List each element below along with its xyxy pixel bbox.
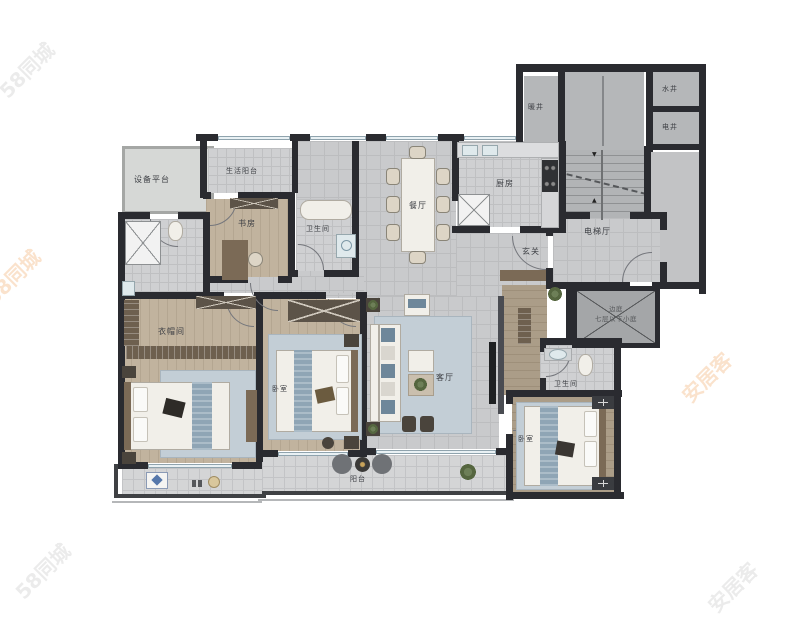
sofa-cushion [381, 382, 395, 396]
coffee-table [408, 350, 434, 372]
stool [420, 416, 434, 432]
wall [614, 344, 621, 499]
wash-basin [549, 349, 567, 360]
nightstand [344, 436, 359, 449]
wall [438, 134, 464, 141]
void-note-line2: 七层以下小庭 [572, 313, 660, 323]
stair-up-arrow-icon: ▲ [592, 198, 597, 204]
window [386, 136, 438, 140]
pillow [336, 387, 349, 415]
wardrobe [288, 300, 360, 322]
stove [542, 160, 558, 192]
nightstand [122, 366, 136, 378]
slippers [192, 480, 196, 487]
wall [366, 448, 376, 455]
room-label-bedroom-right: 卧室 [518, 436, 534, 443]
wall [506, 434, 513, 500]
wall [566, 284, 573, 344]
wash-basin [122, 281, 135, 296]
basket [208, 476, 220, 488]
fridge [458, 194, 490, 226]
wardrobe [126, 346, 256, 359]
stool [402, 416, 416, 432]
armchair-cushion [408, 299, 426, 308]
room-label-heating-shaft: 暖井 [528, 104, 544, 111]
slippers [198, 480, 202, 487]
shower [125, 221, 161, 265]
dining-chair [409, 251, 426, 264]
wall [203, 192, 211, 199]
window [148, 464, 232, 468]
room-label-balcony: 阳台 [350, 476, 366, 483]
window [464, 136, 516, 140]
sofa-cushion [381, 346, 395, 360]
wall [292, 141, 298, 193]
wall [352, 141, 359, 193]
study-bookshelf [230, 198, 278, 209]
sofa-back [370, 324, 379, 422]
balcony-rail [114, 464, 118, 498]
kitchen-sink [462, 145, 478, 156]
sofa-cushion [381, 400, 395, 414]
dining-chair [409, 146, 426, 159]
dining-chair [386, 196, 400, 213]
wall [559, 141, 566, 233]
room-label-kitchen: 厨房 [496, 180, 514, 188]
wall [558, 72, 565, 152]
balcony-chair [332, 454, 352, 474]
room-label-equipment-platform: 设备平台 [134, 176, 170, 184]
roof-line [258, 499, 514, 501]
stair-landing-line [602, 76, 604, 146]
kitchen-sink [482, 145, 498, 156]
wall [506, 492, 624, 499]
dresser [246, 390, 257, 442]
shaft-heating [524, 76, 558, 146]
wall [516, 64, 706, 72]
room-label-bath-second: 卫生间 [554, 381, 578, 388]
window [376, 450, 496, 454]
room-label-living: 客厅 [436, 374, 454, 382]
wall [256, 450, 278, 457]
window [218, 136, 290, 140]
watermark: 58同城 [0, 242, 46, 310]
wall [650, 106, 700, 112]
study-chair [248, 252, 263, 267]
wall [196, 134, 218, 141]
void-note-line1: 边庭 [572, 303, 660, 313]
wall [256, 292, 263, 462]
room-label-cloakroom: 衣帽间 [158, 328, 185, 336]
wall [232, 462, 262, 469]
window [310, 136, 366, 140]
wall [506, 396, 513, 404]
wall [650, 144, 700, 150]
wall [540, 338, 622, 345]
wall [699, 64, 706, 294]
foyer-console [500, 270, 546, 281]
bedside-mat [592, 477, 614, 490]
balcony-rail [114, 494, 266, 498]
wall [324, 270, 359, 277]
room-label-electric-shaft: 电井 [662, 124, 678, 131]
bed-throw [555, 441, 575, 458]
balcony-table [355, 457, 370, 472]
wall [292, 270, 298, 277]
wall [452, 226, 490, 233]
plant [414, 378, 427, 391]
wardrobe [124, 300, 139, 346]
wall [290, 134, 310, 141]
room-label-bedroom-mid: 卧室 [272, 386, 288, 393]
plant [548, 287, 562, 301]
toilet [168, 221, 183, 241]
bedside-mat [592, 396, 614, 409]
stair-down-arrow-icon: ▼ [592, 152, 597, 158]
stair-divider [601, 150, 603, 220]
wall [660, 262, 667, 282]
wall [348, 450, 367, 457]
wall [278, 276, 292, 283]
plant [368, 300, 378, 310]
tv [489, 342, 496, 404]
nightstand [344, 334, 359, 347]
bathtub [300, 200, 352, 220]
bed-runner [294, 350, 312, 432]
bed-headboard [351, 350, 358, 432]
wardrobe-cabinet [196, 296, 256, 309]
room-label-service-balcony: 生活阳台 [226, 168, 258, 175]
dining-chair [436, 196, 450, 213]
pillow [133, 417, 148, 442]
room-label-foyer: 玄关 [522, 248, 540, 256]
toilet [578, 354, 593, 376]
tv-half-wall [498, 296, 504, 414]
wall [644, 146, 651, 218]
wall [200, 141, 207, 198]
roof-line [112, 501, 262, 503]
corridor-cabinet [518, 308, 531, 344]
watermark: 安居客 [675, 345, 738, 408]
wall [366, 134, 386, 141]
pillow [584, 441, 597, 467]
bed-headboard [599, 406, 606, 486]
room-label-water-shaft: 水井 [662, 86, 678, 93]
pillow [584, 411, 597, 437]
wall [546, 268, 553, 282]
wall [288, 192, 295, 276]
dining-chair [386, 224, 400, 241]
room-label-bath-main: 卫生间 [306, 226, 330, 233]
wall [652, 282, 706, 289]
balcony-chair [372, 454, 392, 474]
master-bed-headboard [124, 382, 131, 450]
wall [660, 218, 667, 230]
plant [368, 424, 378, 434]
watermark: 安居客 [701, 555, 764, 618]
pillow [133, 387, 148, 412]
bed-runner [192, 382, 212, 450]
room-label-dining: 餐厅 [409, 202, 427, 210]
dining-chair [436, 168, 450, 185]
watermark: 58同城 [0, 35, 60, 103]
pillow [336, 355, 349, 383]
dining-chair [386, 168, 400, 185]
watermark: 58同城 [8, 536, 76, 604]
stair-landing [564, 72, 644, 150]
sofa-cushion [381, 364, 395, 378]
room-label-study: 书房 [238, 220, 256, 228]
stool [322, 437, 334, 449]
balcony-rail [262, 491, 510, 495]
sofa-cushion [381, 328, 395, 342]
wall [646, 72, 653, 152]
room-label-elevator-hall: 电梯厅 [584, 228, 611, 236]
study-desk [222, 240, 248, 280]
dining-chair [436, 224, 450, 241]
wall [203, 212, 210, 298]
plant [460, 464, 476, 480]
washing-machine-door [341, 240, 352, 251]
nightstand [122, 452, 136, 464]
floor-plan: 边庭 七层以下小庭 ▼ ▲ [0, 0, 800, 600]
